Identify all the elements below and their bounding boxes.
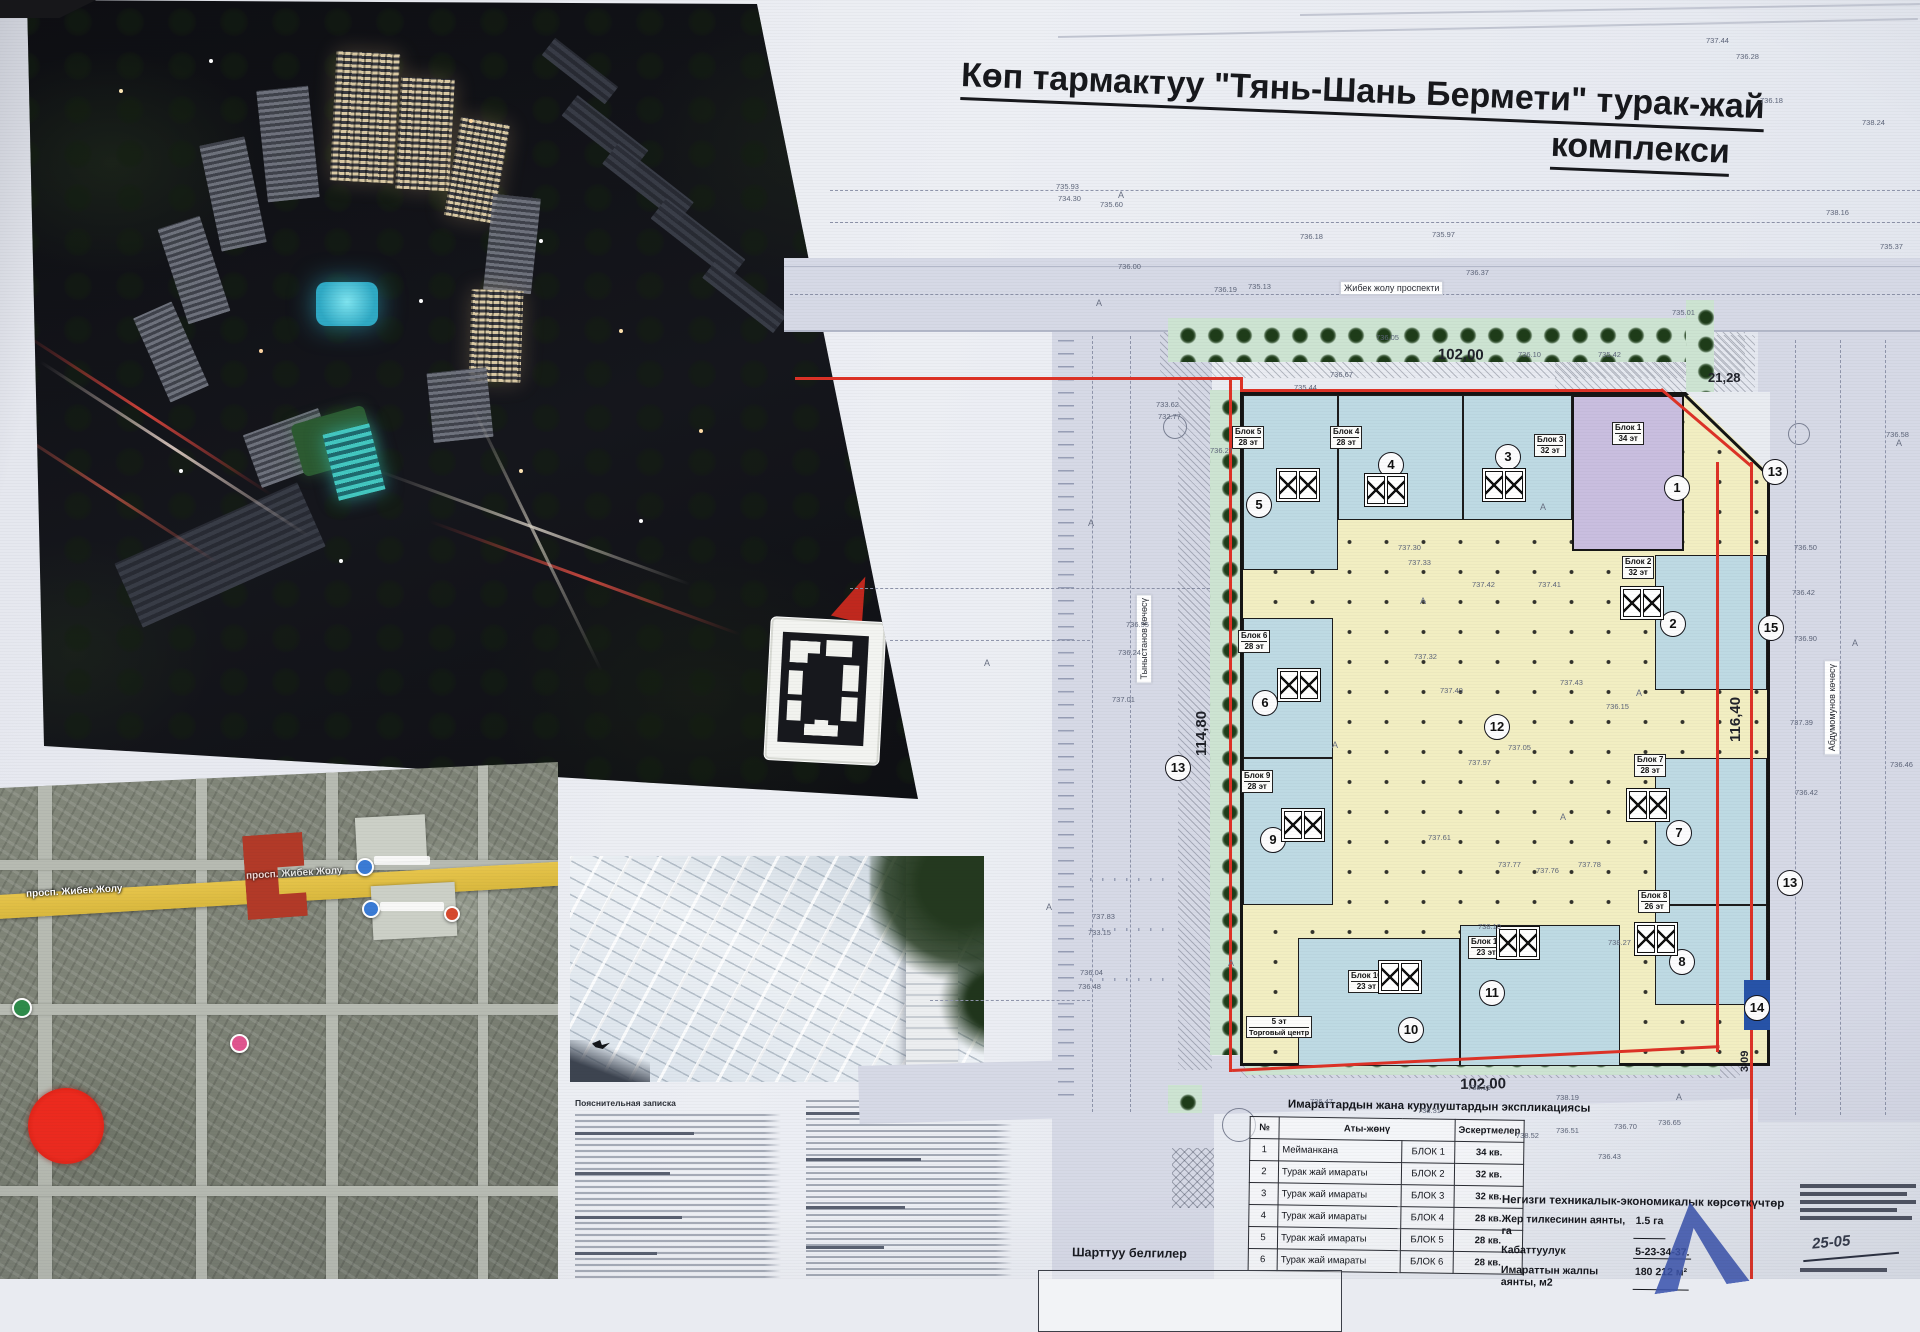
survey-mark: А <box>1560 812 1566 822</box>
spot-elevation: 736.15 <box>1606 702 1629 711</box>
road-dash <box>1795 340 1796 1115</box>
sheet-title: Көп тармактуу "Тянь-Шань Бермети" турак-… <box>958 56 1765 178</box>
spot-elevation: 735.93 <box>1056 182 1079 191</box>
parking-ticks <box>1090 978 1174 981</box>
spot-elevation: 737.76 <box>1536 866 1559 875</box>
tech-row: Жер тилкесинин аянты, га1.5 га <box>1501 1213 1761 1241</box>
spot-elevation: 733.15 <box>1088 928 1111 937</box>
sheet-border-line <box>1300 3 1920 15</box>
legend-box <box>1038 1270 1342 1332</box>
survey-mark: А <box>1852 638 1858 648</box>
block-label: Блок 332 эт <box>1534 434 1566 457</box>
explication-table: № Аты-жөнү Эскертмелер 1МейманканаБЛОК 1… <box>1248 1116 1525 1275</box>
survey-dash <box>890 640 1090 641</box>
spot-elevation: 736.18 <box>1760 96 1783 105</box>
spot-elevation: 737.61 <box>1428 833 1451 842</box>
tech-title: Негизги техникалык-экономикалык көрсөткү… <box>1502 1194 1762 1210</box>
shop-label: 5 этТорговый центр <box>1246 1016 1312 1038</box>
survey-mark: А <box>1676 1092 1682 1102</box>
spot-elevation: 737.41 <box>1538 580 1561 589</box>
spot-elevation: 736.27 <box>1210 446 1233 455</box>
boundary-red <box>795 377 1240 380</box>
survey-mark: А <box>1636 688 1642 698</box>
spot-elevation: 736.42 <box>1792 588 1815 597</box>
plan-circle: 15 <box>1758 615 1784 641</box>
road-dash <box>830 190 1920 191</box>
block-label: Блок 134 эт <box>1612 422 1644 445</box>
survey-mark: А <box>984 658 990 668</box>
survey-mark: А <box>1046 902 1052 912</box>
spot-elevation: 737.33 <box>1408 558 1431 567</box>
elevator-core-icon <box>1626 788 1670 822</box>
plan-circle: 11 <box>1479 980 1505 1006</box>
road-dash <box>1130 336 1131 1112</box>
boundary-red <box>1750 462 1753 1279</box>
dimension-label: 3,09 <box>1739 1051 1751 1072</box>
spot-elevation: 737.49 <box>1440 686 1463 695</box>
presentation-board: просп. Жибек Жолу просп. Жибек Жолу Пояс… <box>0 0 1920 1279</box>
col-note: Эскертмелер <box>1455 1119 1524 1142</box>
plan-circle: 12 <box>1484 714 1510 740</box>
spot-elevation: 737.05 <box>1508 743 1531 752</box>
dimension-label: 21,28 <box>1708 370 1741 385</box>
plan-circle: 13 <box>1165 755 1191 781</box>
street-label-left: Тыныстанов көчөсү <box>1136 594 1152 683</box>
elevator-core-icon <box>1620 586 1664 620</box>
spot-elevation: 734.30 <box>1058 194 1081 203</box>
block-label: Блок 728 эт <box>1634 754 1666 777</box>
spot-elevation: 736.24 <box>1118 648 1141 657</box>
crosshatch-patch <box>1172 1148 1214 1208</box>
spot-elevation: 737.97 <box>1468 758 1491 767</box>
dimension-label: 114,80 <box>1193 711 1210 756</box>
spot-elevation: 736.04 <box>1080 968 1103 977</box>
curb-line <box>784 266 1920 267</box>
spot-elevation: 736.90 <box>1794 634 1817 643</box>
elevator-core-icon <box>1281 808 1325 842</box>
elevator-core-icon <box>1482 468 1526 502</box>
spot-elevation: 737.44 <box>1706 36 1729 45</box>
survey-mark: А <box>1896 438 1902 448</box>
stamp-date: 25-05 <box>1811 1232 1851 1252</box>
spot-elevation: 736.10 <box>1518 350 1541 359</box>
survey-mark: А <box>1088 518 1094 528</box>
elevator-core-icon <box>1378 960 1422 994</box>
spot-elevation: 735.37 <box>1880 242 1903 251</box>
plan-circle: 7 <box>1666 820 1692 846</box>
spot-elevation: 736.00 <box>1118 262 1141 271</box>
block-label: Блок 826 эт <box>1638 890 1670 913</box>
spot-elevation: 736.65 <box>1658 1118 1681 1127</box>
spot-elevation: 737.42 <box>1472 580 1495 589</box>
survey-mark: А <box>1420 596 1426 606</box>
road-dash <box>1885 340 1886 1115</box>
elevator-core-icon <box>1277 668 1321 702</box>
spot-elevation: 736.70 <box>1614 1122 1637 1131</box>
spot-elevation: 736.19 <box>1214 285 1237 294</box>
col-no: № <box>1250 1117 1279 1139</box>
plan-circle: 1 <box>1664 475 1690 501</box>
block-label: Блок 928 эт <box>1241 770 1273 793</box>
plan-circle: 13 <box>1762 459 1788 485</box>
green-patch <box>1168 1085 1202 1113</box>
spot-elevation: 737.39 <box>1790 718 1813 727</box>
spot-elevation: 738.10 <box>1478 922 1501 931</box>
spot-elevation: 736.28 <box>1736 52 1759 61</box>
plan-circle: 5 <box>1246 492 1272 518</box>
street-label-top: Жибек жолу проспекти <box>1340 281 1443 295</box>
plan-circle: 13 <box>1777 870 1803 896</box>
elevator-core-icon <box>1276 468 1320 502</box>
spot-elevation: 736.43 <box>1598 1152 1621 1161</box>
plan-circle: 14 <box>1744 995 1770 1021</box>
boundary-red <box>1716 462 1719 1052</box>
spot-elevation: 737.01 <box>1112 695 1135 704</box>
spot-elevation: 736.47 <box>1310 1097 1333 1106</box>
road-dash <box>830 222 1920 223</box>
approval-stamp: 25-05 <box>1796 1182 1920 1279</box>
tower-slab-10 <box>1298 938 1460 1066</box>
survey-mark: А <box>1228 958 1234 968</box>
spot-elevation: 733.62 <box>1156 400 1179 409</box>
spot-elevation: 736.46 <box>1890 760 1913 769</box>
sheet-title-line1: Көп тармактуу "Тянь-Шань Бермети" турак-… <box>960 56 1765 132</box>
survey-dash <box>930 1000 1090 1001</box>
spot-elevation: 735.42 <box>1598 350 1621 359</box>
plan-circle: 3 <box>1495 444 1521 470</box>
sheet-border-line <box>1058 18 1918 38</box>
spot-elevation: 736.50 <box>1794 543 1817 552</box>
green-strip-left <box>1210 390 1242 1055</box>
spot-elevation: 736.05 <box>1376 333 1399 342</box>
elevator-core-icon <box>1364 473 1408 507</box>
spot-elevation: 737.32 <box>1414 652 1437 661</box>
spot-elevation: 738.31 <box>1418 1106 1441 1115</box>
spot-elevation: 737.30 <box>1398 543 1421 552</box>
spot-elevation: 737.83 <box>1092 912 1115 921</box>
plan-circle: 10 <box>1398 1017 1424 1043</box>
spot-elevation: 735.44 <box>1294 383 1317 392</box>
spot-elevation: 738.19 <box>1556 1093 1579 1102</box>
spot-elevation: 736.42 <box>1795 788 1818 797</box>
spot-elevation: 735.01 <box>1672 308 1695 317</box>
block-label: Блок 628 эт <box>1238 630 1270 653</box>
road-dash <box>1840 340 1841 1115</box>
spot-elevation: 738.24 <box>1862 118 1885 127</box>
spot-elevation: 737.77 <box>1498 860 1521 869</box>
block-label: Блок 528 эт <box>1232 426 1264 449</box>
spot-elevation: 735.13 <box>1248 282 1271 291</box>
spot-elevation: 737.78 <box>1578 860 1601 869</box>
spot-elevation: 737.43 <box>1560 678 1583 687</box>
block-label: Блок 232 эт <box>1622 556 1654 579</box>
site-plan: Көп тармактуу "Тянь-Шань Бермети" турак-… <box>0 0 1920 1279</box>
dimension-label: 102,00 <box>1438 346 1484 364</box>
survey-dash <box>850 588 1210 589</box>
survey-mark: А <box>1540 502 1546 512</box>
spot-elevation: 738.27 <box>1608 938 1631 947</box>
spot-elevation: 732.77 <box>1158 412 1181 421</box>
parking-ticks <box>1058 340 1074 1100</box>
col-name: Аты-жөнү <box>1279 1117 1455 1141</box>
explication-rows: 1МейманканаБЛОК 134 кв.2Турак жай имарат… <box>1248 1139 1524 1275</box>
spot-elevation: 738.16 <box>1826 208 1849 217</box>
manhole-circle <box>1788 423 1810 445</box>
spot-elevation: 736.37 <box>1466 268 1489 277</box>
dimension-label: 116,40 <box>1727 697 1744 742</box>
spot-elevation: 736.67 <box>1330 370 1353 379</box>
spot-elevation: 735.60 <box>1100 200 1123 209</box>
spot-elevation: 735.97 <box>1432 230 1455 239</box>
parking-ticks <box>1090 878 1174 881</box>
survey-mark: А <box>1118 190 1124 200</box>
survey-mark: А <box>1096 298 1102 308</box>
sheet-title-line2: комплекси <box>1550 126 1731 177</box>
road-dash <box>1092 336 1093 1112</box>
spot-elevation: 738.19 <box>1468 1083 1491 1092</box>
survey-mark: А <box>1332 740 1338 750</box>
plan-circle: 6 <box>1252 690 1278 716</box>
hotel-block-1 <box>1572 395 1684 551</box>
spot-elevation: 738.52 <box>1516 1131 1539 1140</box>
elevator-core-icon <box>1496 926 1540 960</box>
street-label-right: Абдумомунов көчөсү <box>1824 660 1840 755</box>
spot-elevation: 736.51 <box>1556 1126 1579 1135</box>
spot-elevation: 736.48 <box>1078 982 1101 991</box>
spot-elevation: 736.18 <box>1300 232 1323 241</box>
elevator-core-icon <box>1634 922 1678 956</box>
block-label: Блок 428 эт <box>1330 426 1362 449</box>
spot-elevation: 736.55 <box>1126 620 1149 629</box>
legend-title: Шарттуу белгилер <box>1072 1245 1187 1261</box>
